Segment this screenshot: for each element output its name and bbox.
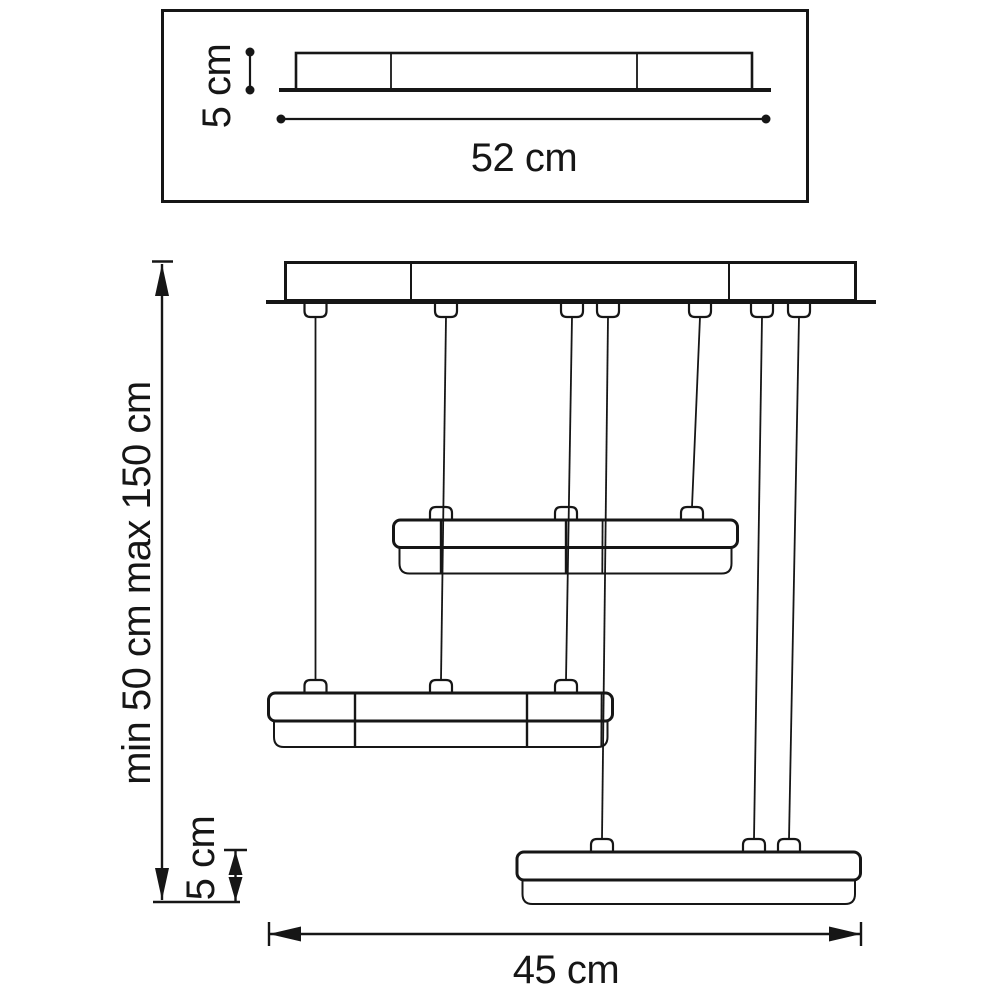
suspension-wire — [692, 317, 700, 507]
detail-height-label: 5 cm — [195, 44, 239, 129]
main-view: min 50 cm max 150 cm 5 cm 45 cm — [115, 262, 876, 993]
wire-holder — [743, 839, 765, 852]
wire-holder — [681, 507, 703, 520]
wire-holder — [597, 304, 619, 317]
wire-holder — [305, 304, 327, 317]
drop-height-label: min 50 cm max 150 cm — [115, 381, 159, 784]
light-bar-middle — [269, 680, 613, 747]
dimension-end-dot — [762, 115, 771, 124]
wire-holder — [435, 304, 457, 317]
detail-width-label: 52 cm — [471, 136, 577, 180]
light-bar-bottom — [517, 839, 861, 904]
suspension-wire — [789, 317, 799, 839]
arrowhead-left — [269, 927, 301, 942]
arrowhead-right — [829, 927, 861, 942]
ceiling-canopy — [266, 263, 876, 318]
wire-holder — [305, 680, 327, 693]
wire-holder — [430, 680, 452, 693]
arrowhead-up — [229, 851, 243, 875]
wire-holder — [555, 507, 577, 520]
diagram-svg: 5 cm 52 cm — [0, 0, 1000, 1000]
suspension-wire — [441, 317, 446, 680]
dimension-end-dot — [246, 86, 255, 95]
canopy-profile-body — [296, 53, 752, 90]
dimension-end-dot — [246, 48, 255, 57]
wire-holder — [430, 507, 452, 520]
bar-diffuser — [523, 880, 856, 904]
bar-body — [517, 852, 861, 880]
bar-wire-holders — [591, 839, 800, 852]
suspension-wire — [754, 317, 762, 839]
bar-height-label: 5 cm — [179, 816, 223, 901]
bar-diffuser — [274, 721, 608, 747]
detail-view: 5 cm 52 cm — [163, 11, 808, 202]
wire-holder — [591, 839, 613, 852]
wire-holder — [788, 304, 810, 317]
detail-width-dimension: 52 cm — [277, 115, 771, 181]
arrowhead-down — [229, 877, 243, 901]
overall-width-label: 45 cm — [513, 948, 619, 992]
bar-body — [269, 693, 613, 721]
bar-height-dimension: 5 cm — [179, 816, 247, 901]
wire-holder — [751, 304, 773, 317]
wire-holder — [689, 304, 711, 317]
bar-wire-holders — [430, 507, 703, 520]
arrowhead-down — [155, 868, 169, 900]
light-bar-upper — [394, 507, 738, 574]
detail-height-dimension: 5 cm — [195, 44, 255, 129]
dimension-diagram: 5 cm 52 cm — [0, 0, 1000, 1000]
suspension-wires — [316, 317, 800, 839]
drop-height-dimension: min 50 cm max 150 cm — [115, 262, 240, 903]
wire-holder — [778, 839, 800, 852]
dimension-end-dot — [277, 115, 286, 124]
suspension-wire — [602, 317, 608, 839]
canopy-wire-holders — [305, 304, 811, 317]
wire-holder — [561, 304, 583, 317]
arrowhead-up — [155, 264, 169, 296]
canopy-body — [286, 263, 856, 301]
bar-wire-holders — [305, 680, 578, 693]
overall-width-dimension: 45 cm — [269, 922, 861, 992]
suspension-wire — [566, 317, 572, 680]
wire-holder — [555, 680, 577, 693]
canopy-profile — [279, 53, 771, 90]
